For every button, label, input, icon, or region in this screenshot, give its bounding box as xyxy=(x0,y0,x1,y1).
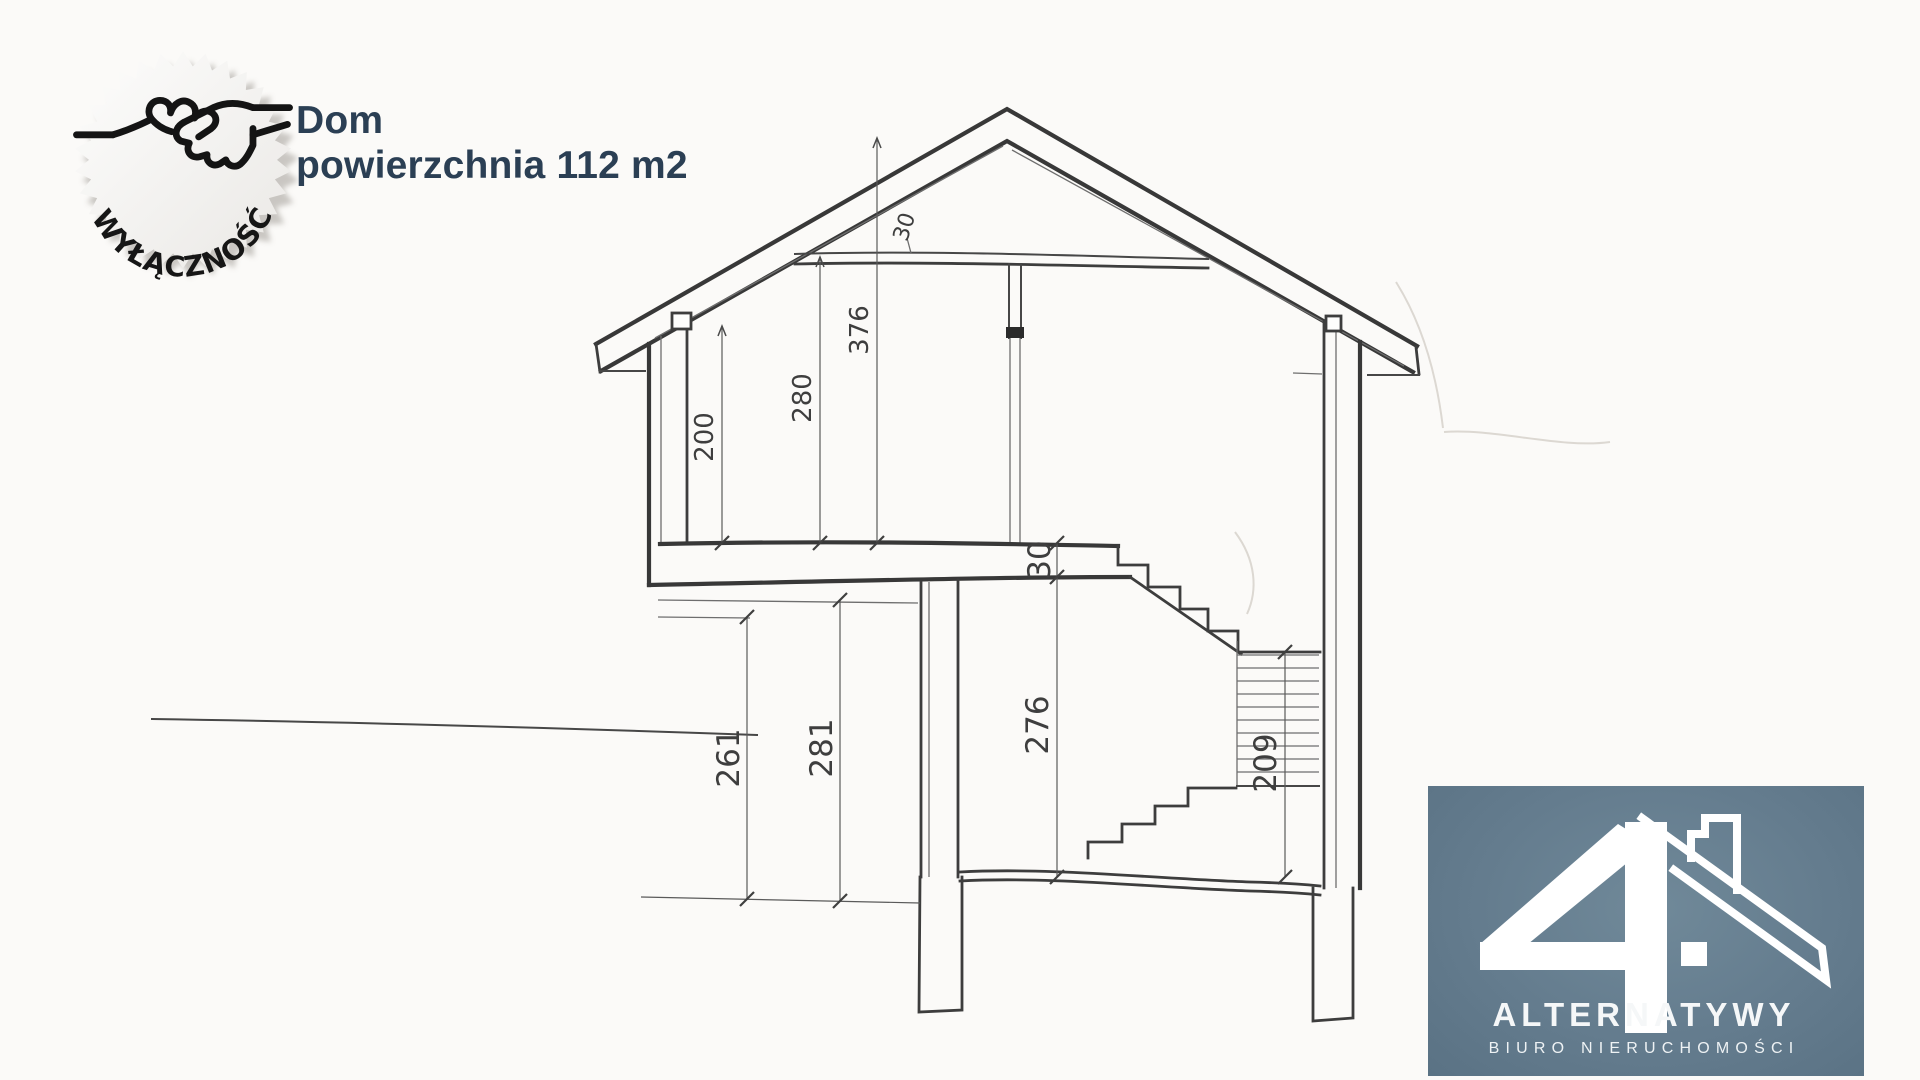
dim-label-281: 281 xyxy=(804,718,840,777)
dim-label-30-slab: 30 xyxy=(1022,540,1058,579)
left-footing xyxy=(919,877,962,1012)
door-lintel xyxy=(1006,327,1024,338)
right-footing xyxy=(1313,888,1353,1021)
listing-image: WYŁĄCZNOŚĆ Dom powierzchnia 112 m2 xyxy=(0,0,1920,1080)
agency-name: ALTERNATYWY xyxy=(1492,996,1795,1033)
dim-label-280: 280 xyxy=(788,373,818,423)
dim-label-200: 200 xyxy=(690,412,720,462)
agency-logo: ALTERNATYWY BIURO NIERUCHOMOŚCI xyxy=(1428,786,1864,1076)
dimension-helpers xyxy=(641,600,920,903)
dim-label-30-roof: 30 xyxy=(889,210,921,244)
dim-label-276: 276 xyxy=(1020,695,1056,754)
dimension-labels: 200 280 376 30 30 276 261 281 209 xyxy=(690,210,1284,793)
terrain-line xyxy=(152,719,757,735)
dim-label-376: 376 xyxy=(845,305,875,355)
stairs-upper xyxy=(1118,546,1320,654)
logo-roof-icon xyxy=(1642,818,1826,980)
wall-plate-right xyxy=(1326,316,1341,331)
wall-plate-left xyxy=(672,313,691,329)
scan-artifacts xyxy=(1235,282,1610,614)
stairs-lower xyxy=(1088,788,1236,858)
agency-logo-graphic: ALTERNATYWY BIURO NIERUCHOMOŚCI xyxy=(1428,786,1864,1076)
basement-floor xyxy=(960,871,1320,895)
dim-label-209: 209 xyxy=(1248,733,1284,792)
dim-label-261: 261 xyxy=(711,728,747,787)
agency-subtitle: BIURO NIERUCHOMOŚCI xyxy=(1489,1038,1800,1057)
collar-ceiling xyxy=(795,238,1208,268)
internal-wall xyxy=(1006,264,1024,544)
basement-left-wall xyxy=(919,580,962,1012)
